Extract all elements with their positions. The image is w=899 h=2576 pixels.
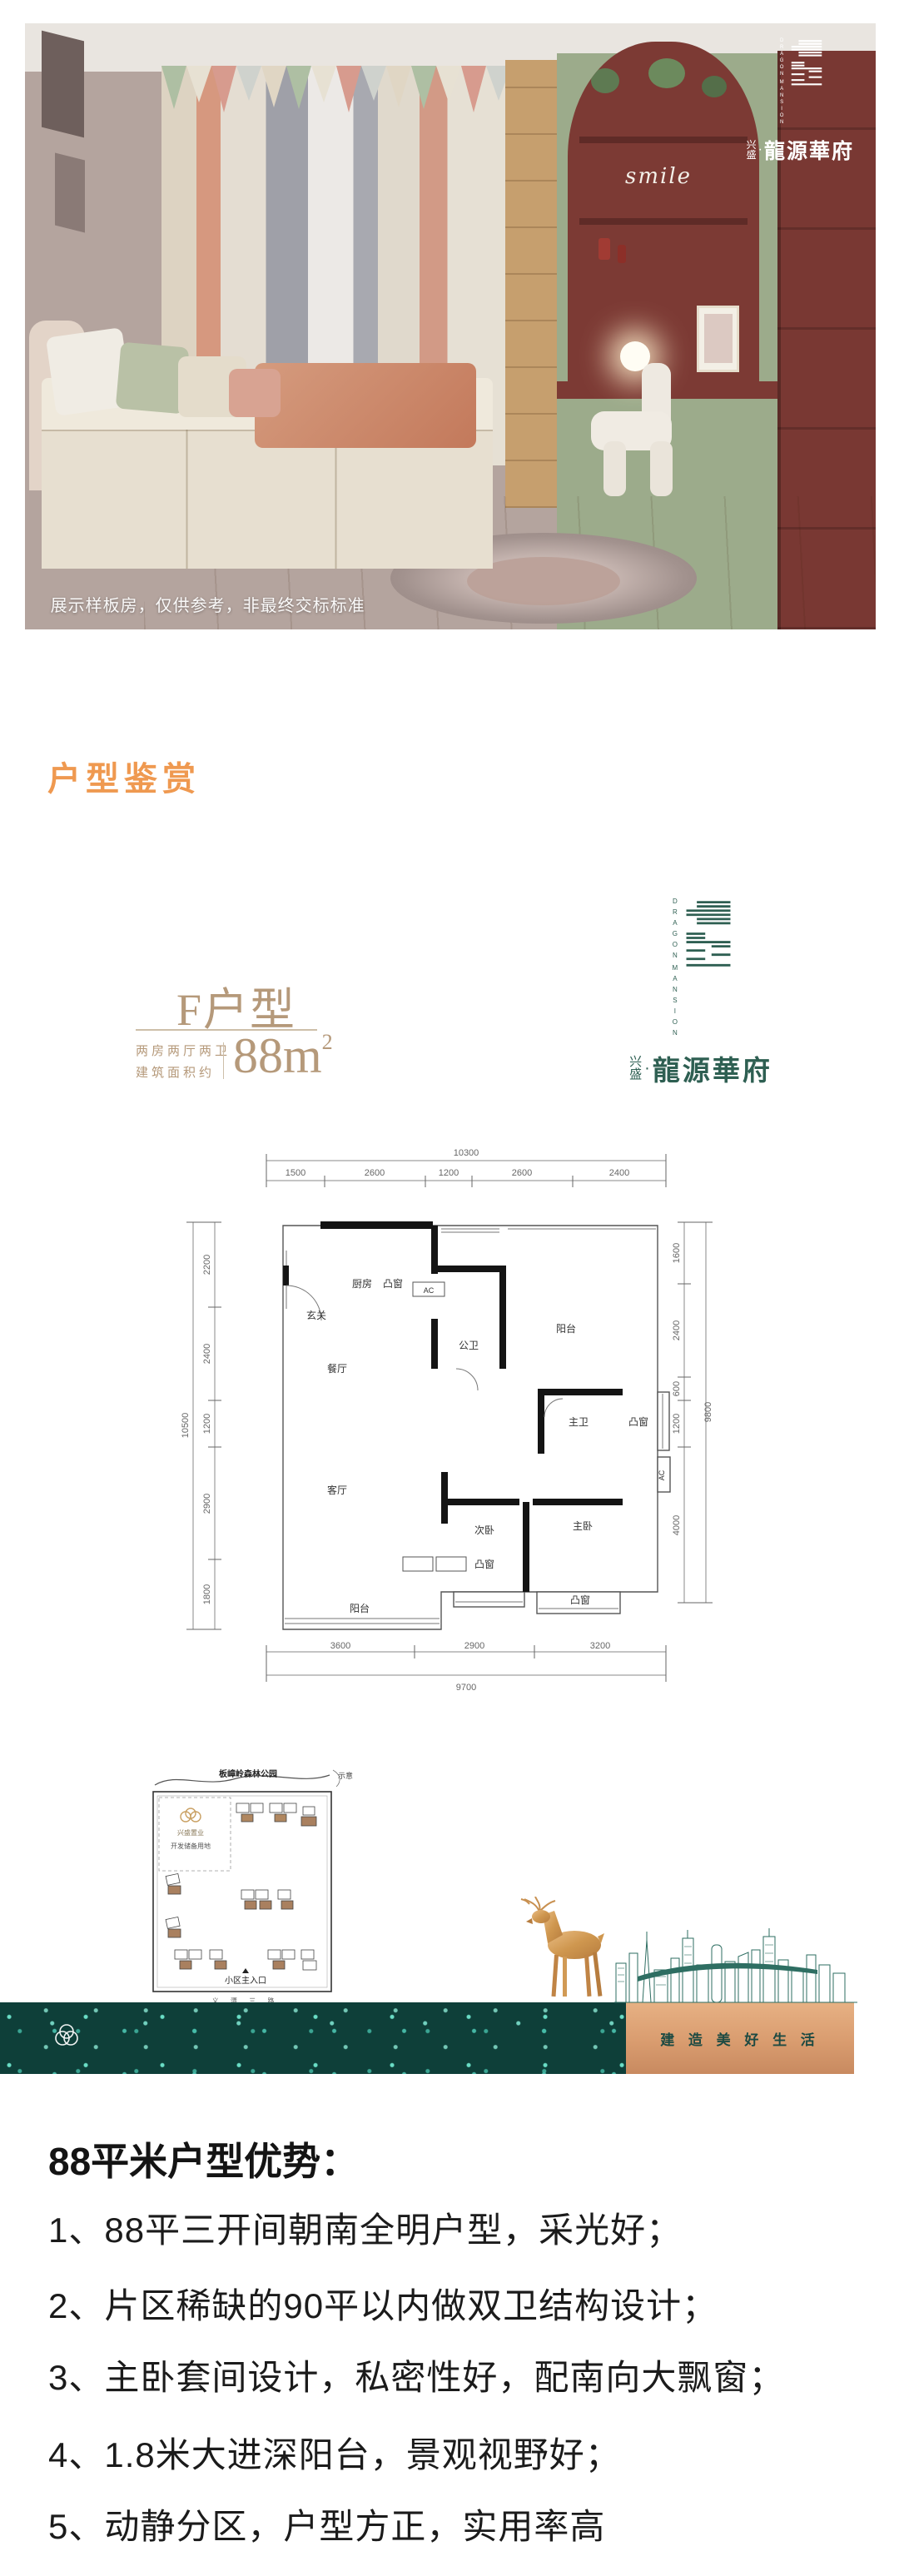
room-label: 凸窗 — [474, 1559, 494, 1570]
page: smile DRAGONMANSION — [0, 0, 899, 2576]
banner-slogan: 建 造 美 好 生 活 — [626, 2002, 854, 2074]
dim-label: 3600 — [330, 1641, 350, 1651]
room-label: 阳台 — [350, 1602, 370, 1614]
dim-label: 2200 — [202, 1255, 212, 1275]
siteplan-drawing: 板嶂岭森林公园 示意 兴盛置业 开发储备用地 — [143, 1763, 366, 2013]
vase — [599, 238, 610, 260]
schematic-label: 示意 — [338, 1771, 353, 1780]
dim-label: 2900 — [202, 1494, 212, 1514]
brand-logo: DRAGONMANSION 兴盛 · 龍源華府 — [626, 898, 776, 1088]
hero-photo: smile DRAGONMANSION — [25, 23, 876, 629]
room-label: 阳台 — [556, 1322, 576, 1335]
ac-label: AC — [658, 1470, 666, 1480]
dim-label: 2600 — [365, 1168, 385, 1178]
photo-disclaimer: 展示样板房，仅供参考，非最终交标标准 — [51, 592, 365, 616]
dim-label: 10500 — [181, 1413, 191, 1439]
advantage-item: 3、主卧套间设计，私密性好，配南向大飘窗； — [48, 2350, 784, 2400]
room-label: 主卫 — [569, 1416, 589, 1428]
blanket — [255, 363, 476, 448]
dim-label: 2400 — [672, 1320, 682, 1340]
floorplan-drawing: 10300 1500 2600 1200 2600 2400 3600 2900… — [166, 1142, 741, 1698]
room-label: 次卧 — [474, 1524, 494, 1536]
room-label: 凸窗 — [383, 1278, 403, 1290]
dim-label: 1500 — [286, 1168, 305, 1178]
dim-label: 9700 — [456, 1683, 476, 1693]
dim-label: 4000 — [672, 1515, 682, 1535]
bay-bump — [454, 1592, 524, 1607]
dim-label: 2400 — [609, 1168, 629, 1178]
entrance-label: 小区主入口 — [225, 1976, 266, 1986]
dim-label: 2400 — [202, 1344, 212, 1364]
room-label: 厨房 — [352, 1277, 372, 1290]
shelf-board — [579, 218, 748, 225]
room-label: 主卧 — [573, 1520, 593, 1532]
shelf-decor-text: smile — [625, 164, 692, 189]
bay-bump — [658, 1392, 669, 1450]
brand-cn-text: 兴盛 · 龍源華府 — [629, 1048, 772, 1088]
shelf-board — [579, 137, 748, 143]
room-label: 公卫 — [459, 1340, 479, 1351]
deer-icon — [509, 1897, 636, 2005]
ac-label: AC — [424, 1286, 435, 1295]
daybed-base — [42, 430, 493, 569]
brand-logo: DRAGONMANSION 兴盛 · 龍源華 — [747, 38, 854, 165]
dim-label: 9800 — [703, 1402, 713, 1422]
dim-label: 2900 — [464, 1641, 484, 1651]
room-label: 餐厅 — [327, 1362, 347, 1375]
room-label: 凸窗 — [628, 1416, 648, 1428]
room-label: 玄关 — [306, 1309, 326, 1321]
wall-frame — [42, 30, 84, 137]
dim-label: 1200 — [672, 1414, 682, 1434]
brand-en-text: DRAGONMANSION — [669, 898, 680, 1040]
plant — [591, 68, 619, 93]
teal-glitter-strip — [0, 2002, 626, 2074]
dim-label: 1200 — [202, 1414, 212, 1434]
brand-logo-icon — [684, 898, 733, 974]
divider — [223, 1042, 224, 1079]
wood-shelf — [505, 60, 560, 509]
bunting-garland — [161, 66, 510, 119]
park-label: 板嶂岭森林公园 — [219, 1768, 277, 1779]
chair-leg — [603, 441, 626, 496]
pillow — [229, 369, 280, 417]
room-label: 客厅 — [327, 1484, 347, 1496]
picture-frame — [697, 306, 739, 372]
reserve-label: 开发储备用地 — [171, 1842, 211, 1850]
brand-logo-icon — [790, 38, 823, 90]
advantage-item: 5、动静分区，户型方正，实用率高 — [48, 2499, 605, 2549]
skyline-icon — [614, 1927, 857, 2003]
dim-label: 3200 — [590, 1641, 610, 1651]
unit-specs: 两房两厅两卫 建筑面积约 — [136, 1041, 231, 1083]
section-title: 户型鉴赏 — [47, 752, 201, 800]
plan-outline — [283, 1226, 658, 1629]
plant — [702, 76, 727, 97]
brand-cn-text: 兴盛 · 龍源華府 — [747, 135, 854, 165]
vase — [618, 245, 626, 263]
dim-label: 600 — [672, 1381, 682, 1396]
advantage-item: 1、88平三开间朝南全明户型，采光好； — [48, 2202, 682, 2253]
advantage-item: 2、片区稀缺的90平以内做双卫结构设计； — [48, 2278, 718, 2329]
knot-icon — [48, 2018, 85, 2055]
advantages-heading: 88平米户型优势： — [48, 2131, 359, 2186]
brand-en-text: DRAGONMANSION — [777, 38, 786, 127]
room-label: 凸窗 — [570, 1594, 590, 1606]
unit-area: 88m2 — [233, 1027, 333, 1085]
chair-leg — [650, 441, 673, 496]
siteplan-brand-label: 兴盛置业 — [177, 1828, 204, 1837]
dim-label: 1200 — [439, 1168, 459, 1178]
plant — [648, 58, 685, 88]
dim-label: 10300 — [454, 1148, 479, 1158]
advantage-item: 4、1.8米大进深阳台，景观视野好； — [48, 2427, 621, 2478]
dim-label: 1600 — [672, 1243, 682, 1263]
dim-label: 1800 — [202, 1584, 212, 1604]
dim-label: 2600 — [512, 1168, 532, 1178]
wall-frame — [55, 153, 85, 233]
